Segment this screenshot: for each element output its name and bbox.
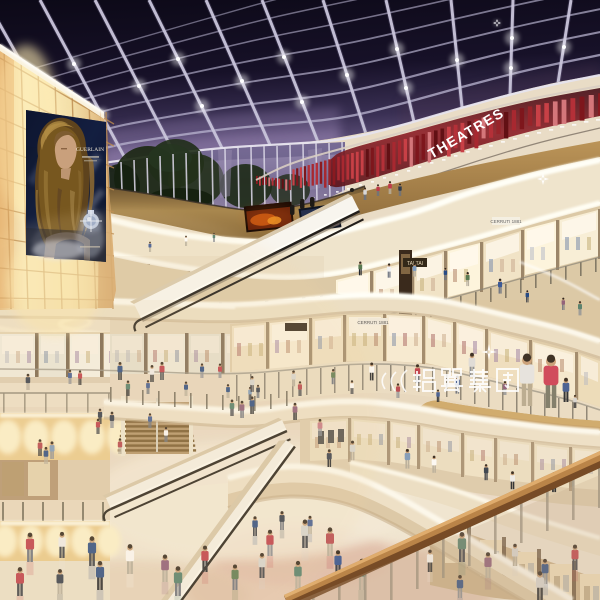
svg-text:CERRUTI 1881: CERRUTI 1881 bbox=[490, 219, 522, 224]
svg-text:GUERLAIN: GUERLAIN bbox=[76, 147, 104, 153]
